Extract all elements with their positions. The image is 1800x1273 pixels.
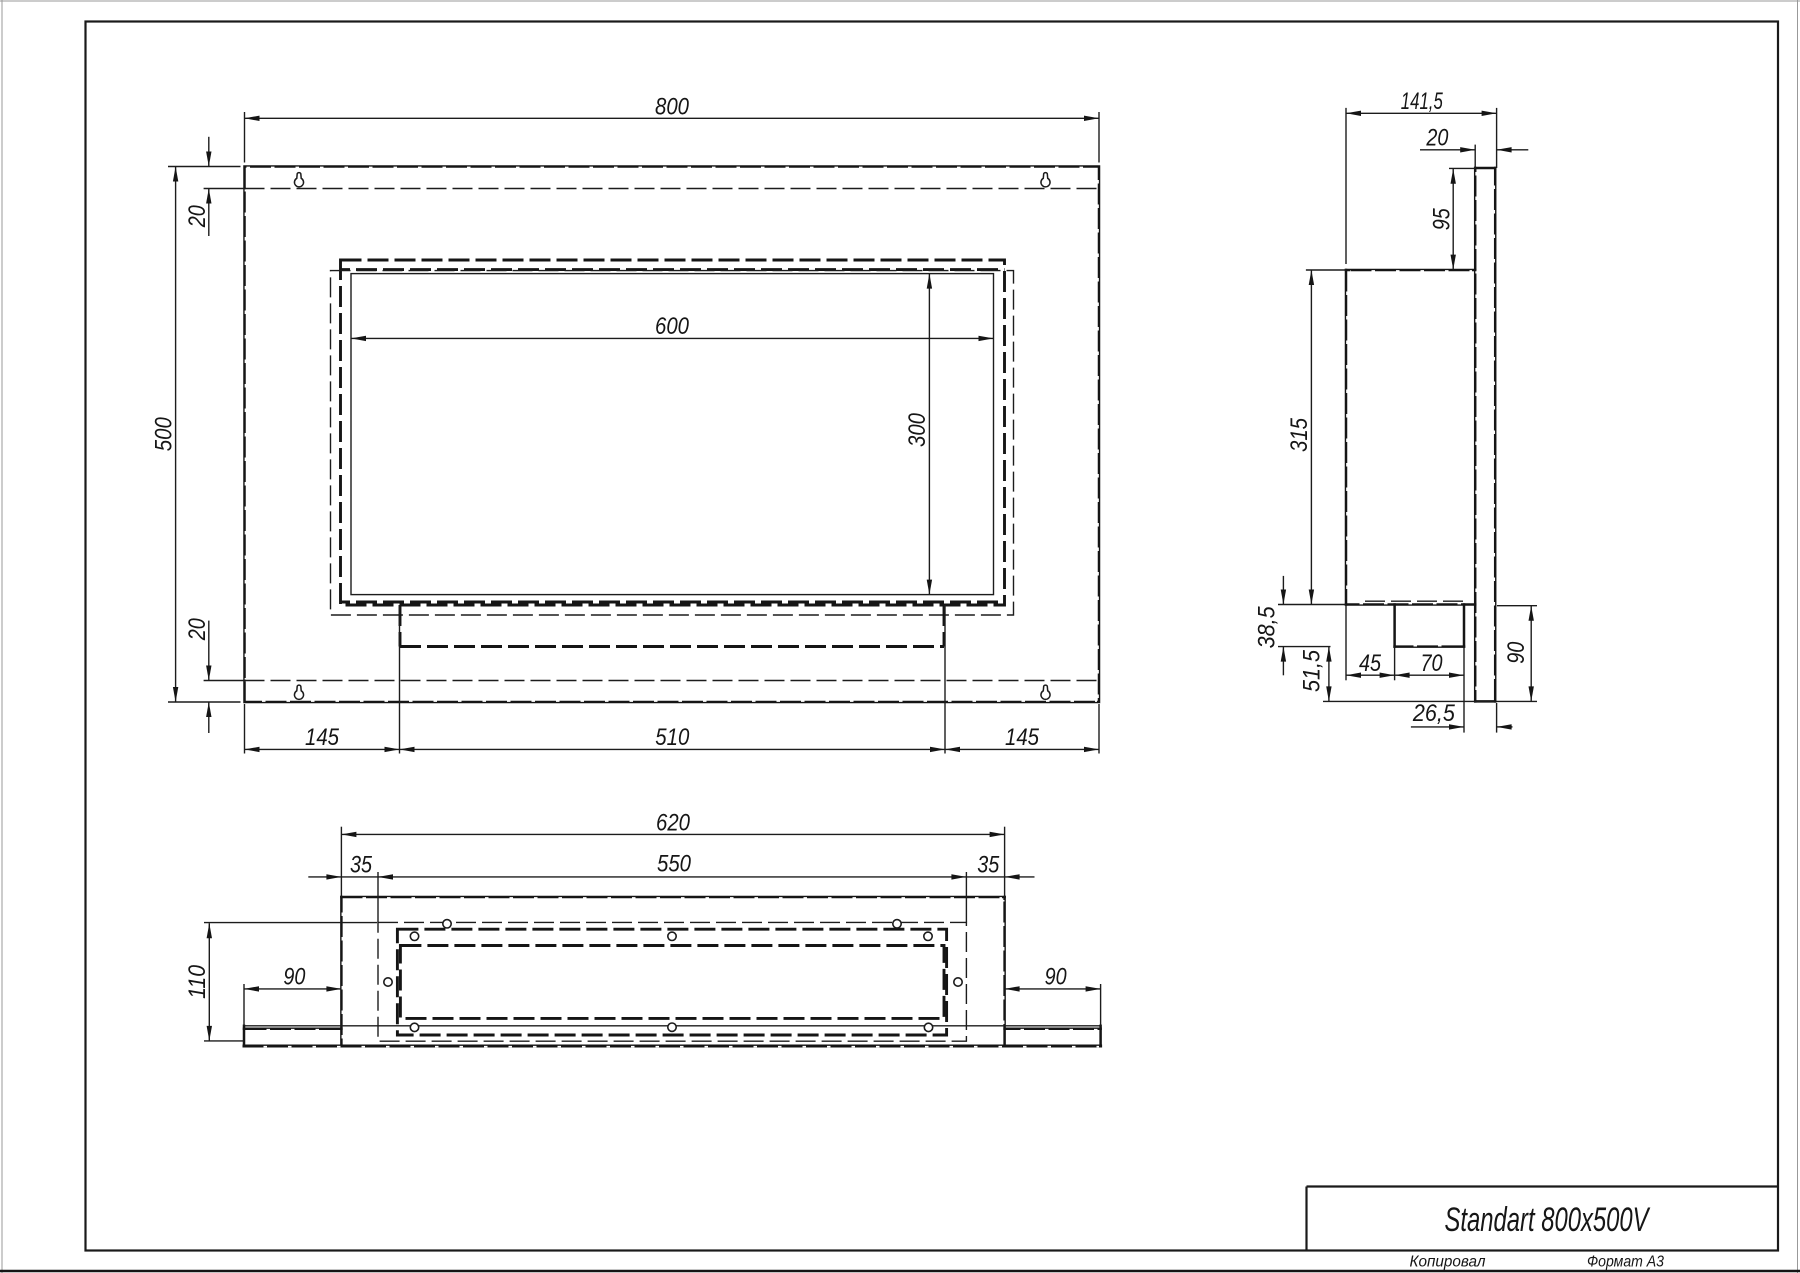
svg-text:Копировал: Копировал (1410, 1254, 1486, 1271)
svg-text:45: 45 (1359, 650, 1382, 677)
svg-text:20: 20 (1426, 124, 1449, 151)
svg-text:90: 90 (1045, 963, 1068, 990)
svg-text:35: 35 (977, 851, 1000, 878)
svg-text:620: 620 (656, 810, 691, 837)
svg-text:300: 300 (904, 412, 931, 447)
svg-text:26,5: 26,5 (1412, 700, 1455, 727)
svg-text:20: 20 (184, 618, 211, 641)
svg-text:145: 145 (305, 724, 340, 751)
svg-text:500: 500 (150, 417, 177, 452)
svg-text:51,5: 51,5 (1299, 649, 1326, 692)
svg-text:20: 20 (184, 205, 211, 228)
svg-text:38,5: 38,5 (1254, 606, 1281, 649)
svg-text:90: 90 (283, 963, 306, 990)
svg-text:95: 95 (1429, 208, 1456, 231)
svg-text:145: 145 (1005, 724, 1040, 751)
svg-text:70: 70 (1421, 650, 1444, 677)
svg-text:90: 90 (1503, 641, 1530, 664)
svg-text:550: 550 (657, 850, 692, 877)
svg-text:800: 800 (655, 94, 690, 121)
svg-text:315: 315 (1286, 417, 1313, 452)
svg-text:Формат А3: Формат А3 (1587, 1254, 1664, 1271)
svg-text:510: 510 (655, 724, 690, 751)
svg-text:35: 35 (350, 851, 373, 878)
svg-text:141,5: 141,5 (1401, 88, 1443, 115)
svg-text:110: 110 (184, 964, 211, 999)
svg-text:Standart 800x500V: Standart 800x500V (1445, 1201, 1651, 1239)
svg-text:600: 600 (655, 313, 690, 340)
